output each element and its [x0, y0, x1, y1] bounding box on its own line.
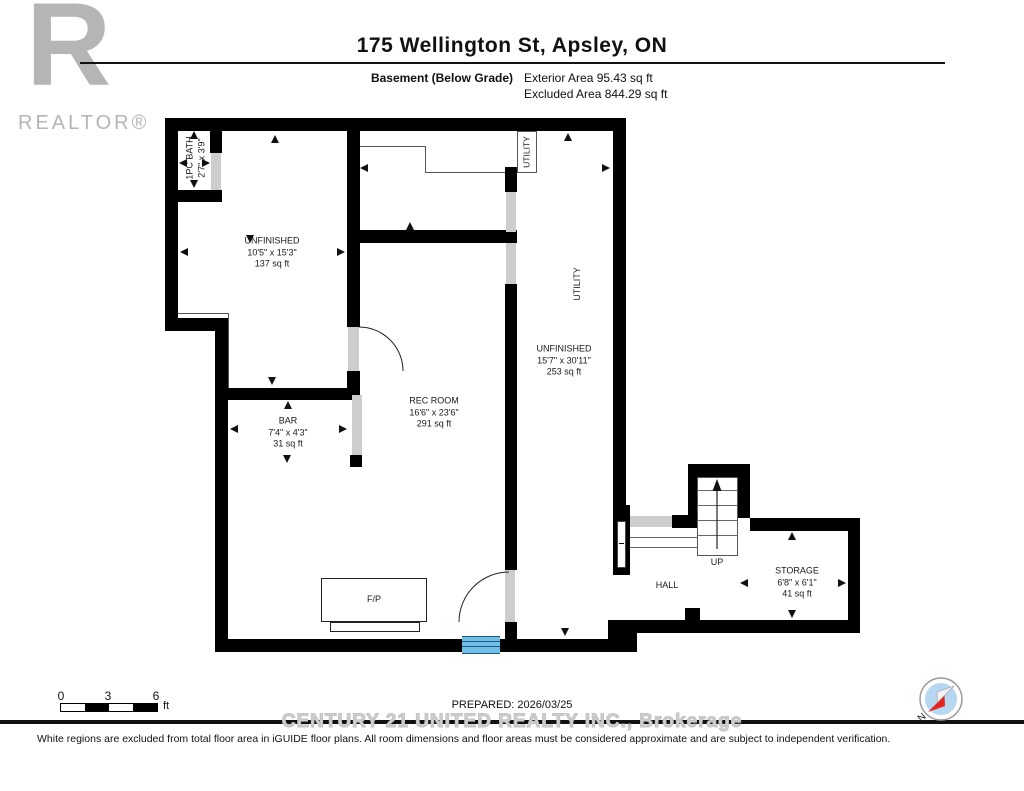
dimension-arrow-icon — [360, 164, 368, 172]
wall — [215, 318, 228, 652]
room-dims: 10'5" x 15'3" — [244, 247, 299, 259]
stair-tread — [697, 490, 738, 491]
wall — [347, 118, 360, 327]
room-label-storage: STORAGE 6'8" x 6'1" 41 sq ft — [775, 565, 819, 600]
dimension-arrow-icon — [268, 377, 276, 385]
dimension-arrow-icon — [179, 159, 187, 167]
room-label-utility-area: UTILITY — [572, 267, 584, 301]
dimension-arrow-icon — [190, 131, 198, 139]
header-divider — [80, 62, 945, 64]
wall — [210, 118, 222, 153]
wall — [215, 639, 637, 652]
staircase — [697, 477, 738, 556]
brokerage-watermark: CENTURY 21 UNITED REALTY INC., Brokerage — [0, 711, 1024, 733]
room-name: 1PC BATH — [184, 136, 196, 179]
fireplace-label: F/P — [367, 594, 381, 606]
room-label-unfinished-right: UNFINISHED 15'7" x 30'11" 253 sq ft — [536, 343, 591, 378]
wall — [165, 190, 222, 202]
dimension-arrow-icon — [271, 135, 279, 143]
room-name: F/P — [367, 594, 381, 606]
room-dims: 16'6" x 23'6" — [409, 407, 459, 419]
dimension-arrow-icon — [788, 532, 796, 540]
wall — [350, 455, 362, 467]
door-leaf — [505, 570, 515, 622]
room-name: REC ROOM — [409, 395, 459, 407]
room-label-bath: 1PC BATH 2'7" x 3'9" — [184, 136, 207, 179]
room-area: 291 sq ft — [409, 419, 459, 431]
dimension-arrow-icon — [202, 159, 210, 167]
excluded-boundary — [228, 313, 229, 388]
dimension-arrow-icon — [180, 248, 188, 256]
wall — [505, 232, 517, 243]
dimension-arrow-icon — [602, 164, 610, 172]
wall — [225, 388, 360, 400]
dimension-arrow-icon — [406, 222, 414, 230]
room-dims: 2'7" x 3'9" — [196, 136, 208, 179]
room-label-bar: BAR 7'4" x 4'3" 31 sq ft — [268, 415, 307, 450]
room-dims: 7'4" x 4'3" — [268, 427, 307, 439]
wall — [608, 620, 860, 633]
dimension-arrow-icon — [339, 425, 347, 433]
wall — [505, 284, 517, 570]
window — [462, 636, 500, 654]
dimension-arrow-icon — [337, 248, 345, 256]
dimension-arrow-icon — [740, 579, 748, 587]
door-leaf — [348, 327, 359, 371]
room-name: UP — [711, 557, 724, 569]
window-slot — [617, 521, 626, 568]
room-name: HALL — [656, 580, 679, 592]
room-name: UTILITY — [572, 267, 584, 301]
excluded-area: Excluded Area 844.29 sq ft — [524, 87, 667, 101]
room-area: 253 sq ft — [536, 367, 591, 379]
door-opening — [506, 192, 516, 232]
excluded-boundary — [178, 313, 229, 314]
wall — [613, 118, 626, 505]
room-label-rec-room: REC ROOM 16'6" x 23'6" 291 sq ft — [409, 395, 459, 430]
stair-tread — [697, 505, 738, 506]
realtor-logo-text: REALTOR® — [18, 112, 149, 135]
dimension-arrow-icon — [284, 401, 292, 409]
dimension-arrow-icon — [190, 180, 198, 188]
room-dims: 6'8" x 6'1" — [775, 577, 819, 589]
door-opening — [630, 516, 672, 527]
wall — [165, 118, 625, 131]
dimension-arrow-icon — [230, 425, 238, 433]
room-area: 31 sq ft — [268, 439, 307, 451]
stair-tread — [697, 520, 738, 521]
fireplace-hearth — [330, 622, 420, 632]
exterior-area: Exterior Area 95.43 sq ft — [524, 71, 653, 85]
excluded-boundary — [360, 146, 425, 147]
stair-tread — [630, 537, 697, 538]
wall — [738, 464, 750, 518]
room-label-utility-closet: UTILITY — [521, 136, 532, 168]
excluded-boundary — [425, 172, 505, 173]
wall — [672, 515, 697, 528]
wall — [347, 230, 517, 243]
room-name: BAR — [268, 415, 307, 427]
dimension-arrow-icon — [283, 455, 291, 463]
door-swing-arc — [459, 572, 509, 622]
prepared-date: PREPARED: 2026/03/25 — [0, 699, 1024, 711]
room-area: 137 sq ft — [244, 259, 299, 271]
wall — [165, 118, 178, 331]
stairs-up-label: UP — [711, 557, 724, 569]
wall — [750, 518, 860, 531]
door-swing-arc — [359, 327, 403, 371]
room-name: STORAGE — [775, 565, 819, 577]
wall — [685, 608, 700, 620]
wall — [505, 622, 517, 652]
dimension-arrow-icon — [246, 235, 254, 243]
dimension-arrow-icon — [838, 579, 846, 587]
room-dims: 15'7" x 30'11" — [536, 355, 591, 367]
floor-label: Basement (Below Grade) — [0, 71, 513, 85]
dimension-arrow-icon — [788, 610, 796, 618]
stair-tread — [630, 547, 697, 548]
dimension-arrow-icon — [564, 133, 572, 141]
stair-tread — [697, 535, 738, 536]
page-title: 175 Wellington St, Apsley, ON — [0, 34, 1024, 58]
room-label-hall: HALL — [656, 580, 679, 592]
room-name: UNFINISHED — [536, 343, 591, 355]
room-name: UTILITY — [521, 136, 532, 168]
wall — [505, 167, 517, 192]
dimension-arrow-icon — [561, 628, 569, 636]
door-opening — [506, 243, 516, 284]
floorplan-page: R REALTOR® 175 Wellington St, Apsley, ON… — [0, 0, 1024, 791]
room-area: 41 sq ft — [775, 589, 819, 601]
excluded-boundary — [425, 146, 426, 173]
disclaimer-text: White regions are excluded from total fl… — [37, 733, 890, 745]
wall — [848, 518, 860, 633]
door-opening — [211, 153, 221, 190]
